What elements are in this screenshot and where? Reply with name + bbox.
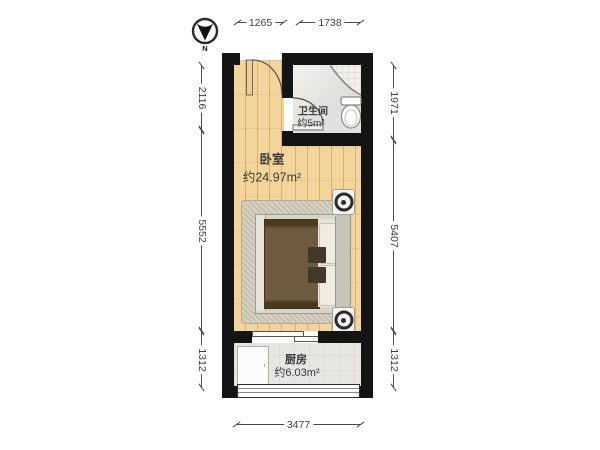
bed-mattress [264, 219, 320, 309]
wall-bathroom-bottom [282, 133, 361, 146]
dim-right-2: 5407 [393, 140, 394, 331]
kitchen-area-label: 约6.03m² [274, 364, 319, 380]
bathroom-area-label: 约5m² [297, 115, 324, 130]
dim-value: 1312 [388, 345, 400, 374]
bed-runner [308, 247, 326, 263]
wall-bathroom-left [282, 60, 293, 98]
floor-plan: N [0, 0, 600, 450]
nightstand-lamp [332, 189, 355, 215]
sliding-door-panel [294, 336, 320, 342]
bed-runner [308, 267, 326, 283]
bedroom-label: 卧室 [259, 149, 284, 168]
dim-value: 1265 [246, 17, 275, 29]
dim-left-2: 5552 [201, 130, 202, 331]
wall-bottom-left [222, 386, 238, 398]
window-mullion [238, 388, 359, 389]
lamp-icon [334, 311, 353, 330]
wall-top-right [282, 53, 373, 65]
bedroom-area-label: 约24.97m² [243, 167, 301, 186]
dim-left-3: 1312 [201, 331, 202, 388]
dim-value: 2116 [196, 83, 208, 112]
dim-bottom-1: 3477 [236, 424, 361, 425]
bed-headboard [335, 210, 351, 316]
kitchen-cabinet [237, 346, 269, 385]
dim-value: 3477 [284, 419, 313, 431]
compass-north-label: N [202, 44, 207, 53]
dim-value: 5407 [388, 221, 400, 250]
lamp-icon [334, 193, 353, 212]
cabinet-handle [264, 364, 269, 368]
dim-value: 1738 [315, 17, 344, 29]
window-mullion [238, 392, 359, 393]
kitchen-window [237, 384, 360, 398]
wall-kitchen-left [222, 331, 252, 343]
dim-left-1: 2116 [201, 65, 202, 130]
wall-right [361, 53, 373, 398]
dim-top-1: 1265 [237, 22, 284, 23]
wall-left [222, 53, 234, 398]
dim-value: 1312 [196, 345, 208, 374]
wall-kitchen-right [318, 331, 361, 343]
dim-value: 5552 [196, 216, 208, 245]
nightstand-lamp [332, 307, 355, 333]
dim-right-3: 1312 [393, 331, 394, 388]
dim-right-1: 1971 [393, 65, 394, 140]
dim-top-2: 1738 [299, 22, 361, 23]
dim-value: 1971 [388, 88, 400, 117]
